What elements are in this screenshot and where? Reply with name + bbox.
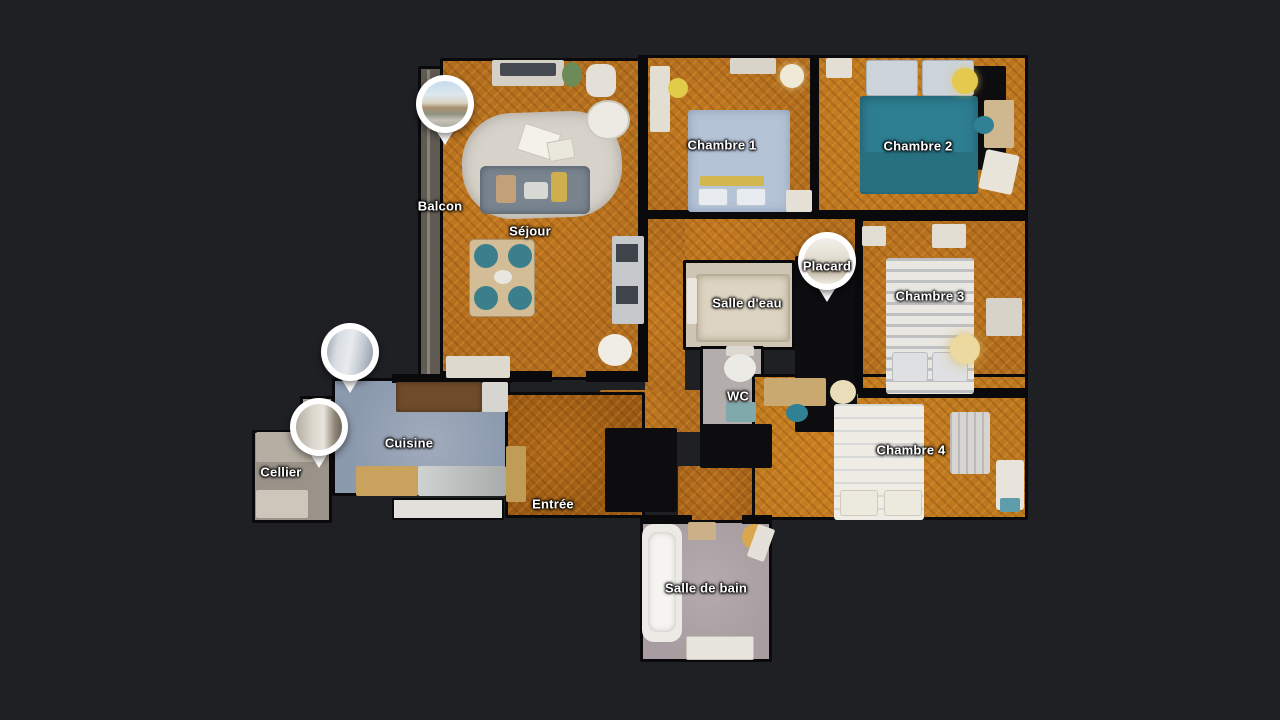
room-label-chambre-1: Chambre 1	[688, 138, 757, 153]
sofa-cushion	[524, 182, 548, 199]
shelf	[688, 522, 716, 540]
pin-ring	[290, 398, 348, 456]
unscanned-area	[605, 428, 677, 512]
pin-ring	[416, 75, 474, 133]
pillow	[840, 490, 878, 516]
pillow	[884, 490, 922, 516]
towel	[687, 278, 697, 324]
nightstand	[862, 226, 886, 246]
room-label-wc: WC	[727, 389, 749, 404]
room-label-salle-de-bain: Salle de bain	[665, 581, 747, 596]
bed-throw	[860, 152, 978, 192]
dining-chair	[508, 244, 532, 268]
sofa-cushion	[496, 175, 516, 203]
apartment-floorplan: Balcon Séjour Chambre 1 Chambre 2 Placar…	[0, 0, 1280, 720]
nightstand	[786, 190, 812, 212]
wall	[586, 371, 648, 382]
desk	[650, 66, 670, 132]
hall-cabinet	[506, 446, 526, 502]
room-label-salle-deau: Salle d'eau	[712, 296, 782, 311]
pillow	[736, 188, 766, 206]
kitchen-cabinet	[482, 382, 508, 412]
tv	[500, 63, 556, 76]
vanity-sink	[686, 636, 754, 660]
floor-lamp	[950, 334, 980, 364]
wall	[742, 515, 772, 524]
panorama-marker-balcon[interactable]	[416, 75, 474, 133]
nightstand	[826, 58, 852, 78]
pillow	[698, 188, 728, 206]
desk	[986, 298, 1022, 336]
panorama-marker-cellier[interactable]	[290, 398, 348, 456]
dining-chair	[508, 286, 532, 310]
panorama-marker-cuisine[interactable]	[321, 323, 379, 381]
dining-chair	[474, 286, 498, 310]
desk	[764, 378, 826, 406]
room-label-chambre-2: Chambre 2	[884, 139, 953, 154]
dining-chair	[474, 244, 498, 268]
room-label-cellier: Cellier	[260, 465, 301, 480]
table-centerpiece	[494, 270, 512, 284]
sofa-cushion	[551, 172, 567, 202]
kitchen-appliances	[418, 466, 506, 496]
bed-throw	[700, 176, 764, 186]
kitchen-counter	[396, 382, 482, 412]
room-label-cuisine: Cuisine	[385, 436, 433, 451]
room-label-sejour: Séjour	[509, 224, 551, 239]
desk-chair	[668, 78, 688, 98]
storage-shelf	[256, 490, 308, 518]
pin-photo-corridor-view	[327, 329, 373, 375]
wall	[640, 515, 692, 524]
bench	[446, 356, 510, 378]
floor-lamp	[780, 64, 804, 88]
floorplan-viewer[interactable]: Balcon Séjour Chambre 1 Chambre 2 Placar…	[0, 0, 1280, 720]
shelf-item	[616, 244, 638, 262]
desk-chair	[974, 116, 994, 134]
shelf-item	[616, 286, 638, 304]
lamp	[952, 68, 978, 94]
armchair	[586, 64, 616, 97]
side-table	[830, 380, 856, 404]
room-label-balcon: Balcon	[418, 199, 463, 214]
pillow	[892, 352, 928, 382]
room-label-chambre-4: Chambre 4	[877, 443, 946, 458]
kitchen-table	[392, 498, 504, 520]
laundry-basket	[586, 100, 630, 140]
rug	[950, 412, 990, 474]
pin-photo-cellar-view	[296, 404, 342, 450]
room-label-entree: Entrée	[532, 497, 574, 512]
shelf	[730, 58, 776, 74]
desk-chair	[786, 404, 808, 422]
toilet	[724, 354, 756, 382]
nightstand	[932, 224, 966, 248]
room-label-chambre-3: Chambre 3	[896, 289, 965, 304]
kitchen-counter-lower	[356, 466, 418, 496]
side-table	[598, 334, 632, 366]
cushion	[1000, 498, 1020, 512]
pin-ring	[321, 323, 379, 381]
unscanned-area	[700, 424, 772, 468]
plant	[562, 62, 582, 87]
pin-photo-balcony-view	[422, 81, 468, 127]
pillow	[866, 60, 918, 96]
bath-mat	[726, 402, 756, 422]
room-label-placard: Placard	[803, 259, 851, 274]
